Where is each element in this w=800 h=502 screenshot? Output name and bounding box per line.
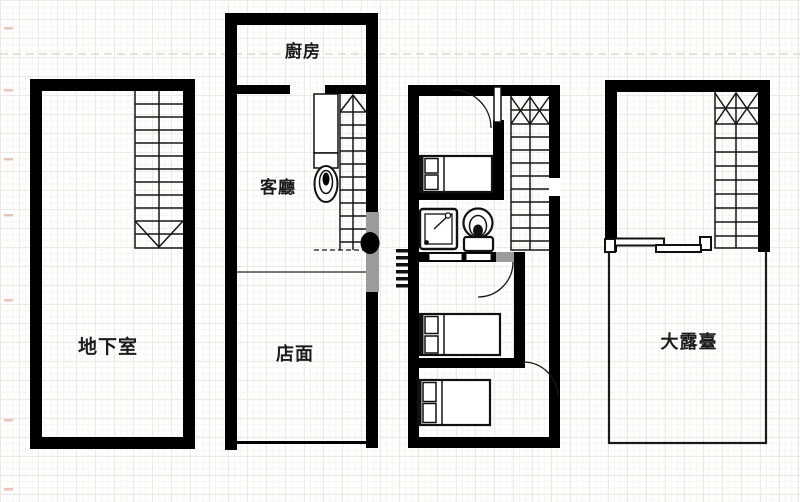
unit-bedrooms bbox=[396, 85, 560, 448]
staircase-icon bbox=[135, 91, 183, 248]
toilet-icon bbox=[314, 94, 338, 202]
margin-tick-marks bbox=[4, 27, 13, 491]
bed-icon bbox=[420, 156, 492, 192]
basement-label: 地下室 bbox=[78, 335, 138, 358]
shower-icon bbox=[420, 209, 457, 249]
basement-walls bbox=[30, 79, 195, 449]
door-leaf bbox=[494, 87, 501, 122]
staircase-icon bbox=[511, 96, 549, 250]
kitchen-partition-wall bbox=[225, 85, 290, 94]
storefront-glass-line bbox=[237, 441, 366, 444]
bed-icon bbox=[420, 314, 500, 355]
floor-plan-canvas: 地下室 廚房 客廳 店面 bbox=[0, 0, 800, 502]
storefront-label: 店面 bbox=[276, 343, 314, 365]
terrace-label: 大露臺 bbox=[661, 331, 718, 353]
shop-walls bbox=[225, 13, 378, 450]
window-gap bbox=[549, 178, 560, 196]
watermark-strip bbox=[496, 252, 514, 262]
floor-plan: 地下室 廚房 客廳 店面 bbox=[0, 0, 800, 502]
living-room-label: 客廳 bbox=[259, 177, 296, 198]
bed-icon bbox=[418, 380, 490, 425]
pocket-door bbox=[429, 254, 462, 261]
door-knob-mark bbox=[361, 232, 380, 254]
kitchen-label: 廚房 bbox=[285, 41, 321, 62]
kitchen-partition-wall bbox=[325, 85, 366, 94]
unit-basement: 地下室 bbox=[30, 79, 195, 449]
sliding-door-icon bbox=[605, 237, 711, 252]
toilet-icon bbox=[464, 209, 494, 252]
ladder-hatch-icon bbox=[396, 249, 408, 288]
unit-shop: 廚房 客廳 店面 bbox=[225, 13, 380, 450]
unit-terrace: 大露臺 bbox=[605, 80, 770, 443]
staircase-icon bbox=[715, 92, 758, 248]
pocket-door bbox=[466, 254, 491, 261]
door-arc-icon bbox=[478, 262, 513, 297]
